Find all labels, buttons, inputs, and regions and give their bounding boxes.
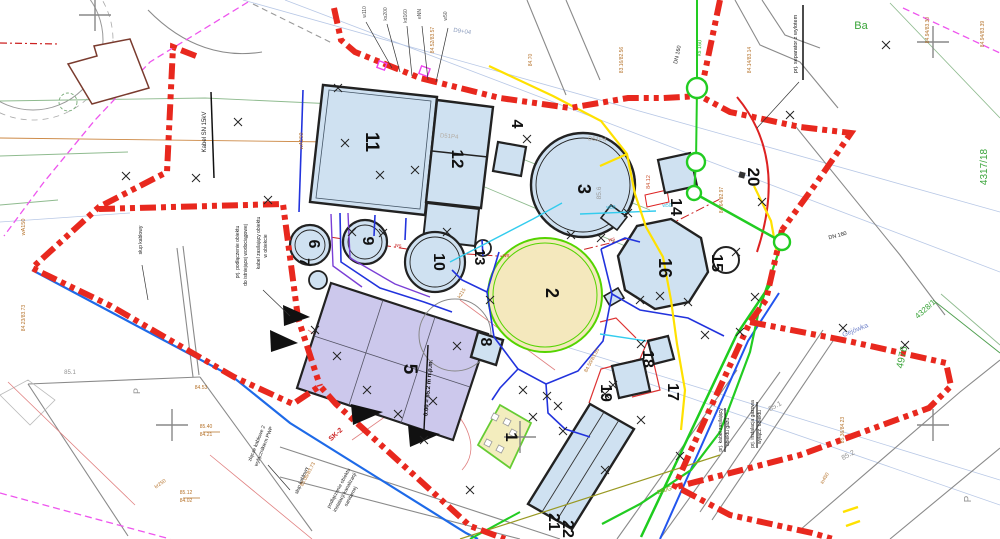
- annotation-label: 84.14/83.14: [747, 47, 753, 74]
- tank-16-stub-b: [604, 288, 624, 306]
- annotation-label: 84.12: [646, 175, 652, 189]
- boundary-inner: [99, 204, 320, 386]
- survey-cross-icon: [786, 111, 794, 119]
- survey-cross-icon: [701, 331, 709, 339]
- annotation-label: prj. separator z wylotem: [793, 14, 799, 73]
- annotation-label: D9+04: [453, 28, 472, 37]
- building-19: [528, 404, 634, 529]
- annotation-label: 84.53: [195, 385, 208, 391]
- manhole-icon: [687, 153, 705, 171]
- survey-cross-icon: [519, 386, 527, 394]
- site-plan-svg: 12345678910111213141516171819202122SK-2K…: [0, 0, 1000, 539]
- annotation-label: kr250: [154, 478, 168, 490]
- annotation-label: DN 160: [673, 45, 683, 64]
- structure-label-20: 20: [744, 168, 763, 187]
- structure-label-18: 18: [639, 350, 656, 368]
- structure-label-9: 9: [359, 237, 376, 246]
- annotation-label: DN 160: [828, 231, 848, 242]
- annotation-label: 4317/18: [979, 148, 990, 185]
- triangle-marker: [270, 330, 298, 352]
- annotation-label: 4976: [895, 345, 910, 369]
- annotation-label: Kabel SN 15kV: [202, 112, 208, 153]
- annotation-label: do istniejącej wodociągowej: [243, 224, 249, 286]
- annotation-label: 84.94/83.39: [980, 21, 986, 48]
- annotation-label: w110: [362, 6, 368, 18]
- annotation-label: 4328/1: [913, 297, 938, 320]
- annotation-label: in450: [819, 472, 830, 486]
- structure-label-3: 3: [574, 184, 594, 194]
- dashed-circle-marker: [59, 93, 77, 111]
- manhole-group: [687, 78, 790, 250]
- structure-label-11: 11: [361, 132, 382, 153]
- annotation-label: SK-2: [328, 427, 345, 443]
- structure-label-2: 2: [542, 288, 562, 298]
- manhole-icon: [687, 78, 707, 98]
- structure-label-16: 16: [655, 258, 675, 278]
- structure-label-17: 17: [664, 383, 681, 401]
- structure-label-15: 15: [708, 254, 725, 272]
- annotation-label: ws: [393, 243, 402, 250]
- annotation-label: eNN: [417, 9, 423, 19]
- annotation-label: prj. podłączenie obiektu: [235, 226, 241, 279]
- survey-cross-icon: [554, 402, 562, 410]
- annotation-label: Ba: [854, 20, 868, 32]
- annotation-label: kd160: [403, 9, 409, 23]
- structure-label-22: 22: [559, 520, 576, 538]
- annotation-label: 84.64/82.97: [719, 187, 725, 214]
- survey-cross-icon: [122, 172, 130, 180]
- annotation-label: 84.21: [200, 432, 213, 438]
- annotation-label: w50: [662, 203, 671, 209]
- annotation-label: DN/G: [657, 486, 673, 496]
- annotation-label: prj. kabel zasilający: [718, 408, 724, 452]
- site-plan-drawing: 12345678910111213141516171819202122SK-2K…: [0, 0, 1000, 539]
- annotation-label: 85.40: [200, 424, 213, 430]
- survey-cross-icon: [882, 41, 890, 49]
- survey-cross-icon: [751, 293, 759, 301]
- annotation-label: prj. instalacja gazowa: [750, 400, 756, 448]
- annotation-label: 84.94/83.30: [925, 17, 931, 44]
- survey-cross-icon: [529, 413, 537, 421]
- structure-label-13: 13: [471, 249, 488, 266]
- survey-cross-icon: [234, 118, 242, 126]
- survey-cross-icon: [523, 135, 531, 143]
- boundary-layer: [32, 0, 951, 539]
- survey-cross-icon: [637, 416, 645, 424]
- annotation-label: 84.70: [528, 54, 534, 67]
- annotation-label: 85.1: [64, 370, 76, 376]
- gate-symbol: [419, 66, 430, 77]
- annotation-label: ks 160: [697, 40, 704, 57]
- annotation-label: obiektu gazu: [725, 418, 731, 447]
- structure-label-5: 5: [399, 364, 420, 375]
- structure-label-12: 12: [448, 150, 467, 169]
- annotation-label: wA150: [21, 219, 27, 237]
- survey-cross-icon: [597, 234, 605, 242]
- structure-label-19: 19: [597, 384, 614, 402]
- annotation-label: k215: [457, 287, 468, 300]
- grid-cross-icon: [917, 409, 949, 441]
- elevation-fraction-bars: [183, 432, 220, 498]
- grid-cross-icon: [917, 26, 949, 58]
- cable-sn-line: [211, 92, 214, 178]
- annotation-label: 84.23/83.73: [21, 305, 27, 332]
- grid-cross-icon: [156, 409, 188, 441]
- structure-label-6: 6: [305, 240, 322, 249]
- annotation-label: 84.52/83.57: [430, 27, 436, 54]
- structure-label-8: 8: [477, 338, 494, 347]
- survey-cross-icon: [466, 486, 474, 494]
- structure-label-10: 10: [430, 253, 447, 271]
- tank-7: [309, 271, 327, 289]
- manhole-icon: [687, 186, 701, 200]
- structure-label-1: 1: [502, 432, 521, 441]
- annotation-label: 85.2: [841, 449, 856, 462]
- survey-cross-icon: [192, 174, 200, 182]
- annotation-label: wA150: [299, 133, 305, 151]
- annotation-label: 85.36/84.23: [840, 417, 846, 444]
- annotation-label: 84.02: [180, 498, 193, 504]
- structure-label-4: 4: [508, 120, 525, 129]
- structure-label-7: 7: [297, 258, 313, 266]
- annotation-label: 83.16/82.56: [619, 47, 625, 74]
- survey-cross-icon: [637, 340, 645, 348]
- annotation-label: P: [963, 495, 974, 502]
- boundary-se-parcel: [676, 322, 951, 487]
- annotation-label: ws: [502, 253, 510, 259]
- annotation-label: ks200: [383, 7, 389, 21]
- annotation-label: 85.12: [180, 490, 193, 496]
- annotation-label: w50: [443, 11, 449, 20]
- annotation-label: 85.6: [596, 186, 603, 199]
- grid-cross-icon: [79, 0, 111, 31]
- building-4: [493, 142, 526, 176]
- annotation-label: wyłącz. obiektu: [757, 410, 763, 444]
- annotation-label: słup kablowy: [138, 225, 144, 254]
- building-existing-nw: [68, 39, 149, 104]
- annotation-label: w obiekcie: [263, 234, 269, 258]
- manhole-icon: [774, 234, 790, 250]
- annotation-label: kabel zasilający obiektu: [256, 217, 262, 270]
- annotation-label: w50: [606, 205, 615, 211]
- annotation-label: P: [132, 388, 142, 394]
